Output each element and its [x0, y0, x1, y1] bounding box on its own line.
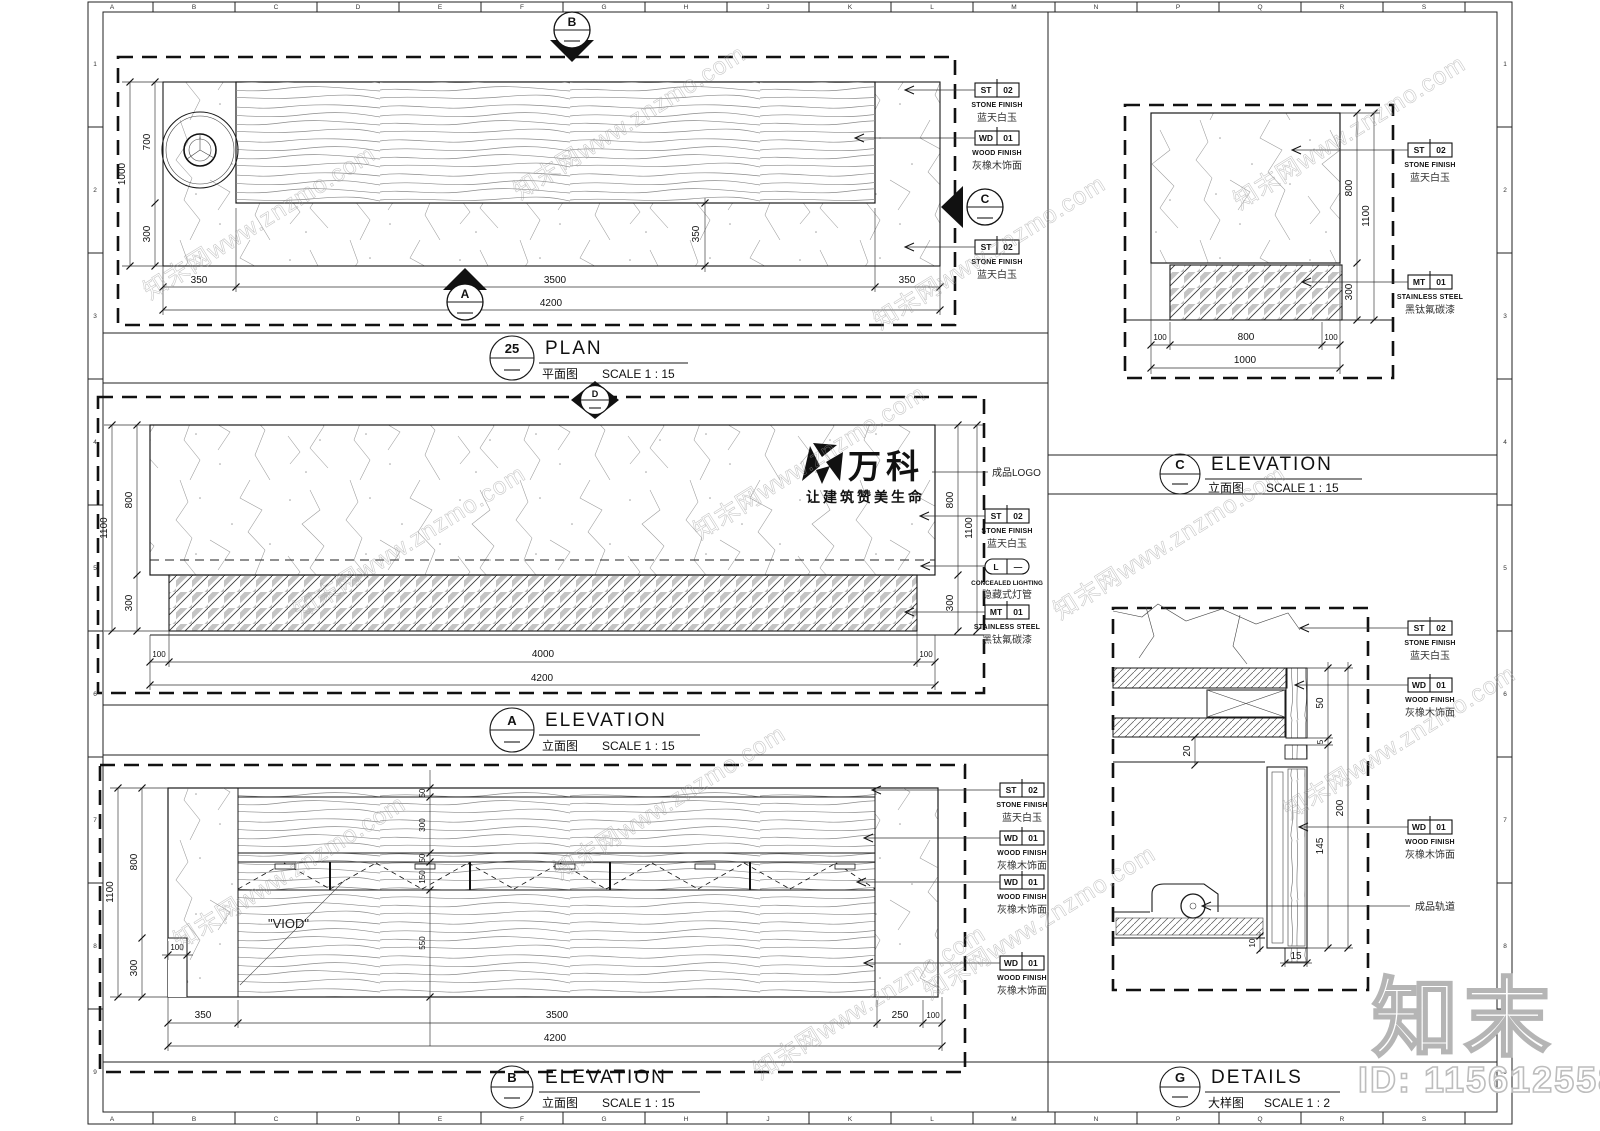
section-marker-c: C	[941, 186, 1003, 228]
callout-cn: 蓝天白玉	[977, 111, 1017, 124]
callout-num: 01	[1003, 133, 1013, 143]
title-scale: SCALE 1 : 2	[1264, 1096, 1330, 1110]
dim-label: 10	[1248, 938, 1257, 947]
grid-letter-top: Q	[1257, 4, 1262, 11]
callout-code: MT	[1413, 277, 1426, 287]
grid-number-left: 6	[93, 691, 97, 698]
callout-cn: 灰橡木饰面	[997, 984, 1047, 997]
dim-label: 3500	[546, 1010, 569, 1021]
dim-label: 100	[1153, 333, 1167, 342]
material-callout-light: L — CONCEALED LIGHTING 隐藏式灯管	[971, 559, 1043, 601]
grid-letter-bottom: H	[684, 1116, 689, 1123]
callout-code: WD	[1004, 833, 1018, 843]
detail-panel-cap-top	[1285, 745, 1307, 759]
callout-code: ST	[1006, 785, 1018, 795]
material-callout-stone: ST 02 STONE FINISH 蓝天白玉	[1404, 139, 1455, 184]
dim-label: 150	[418, 870, 427, 884]
dim-label: 100	[926, 1011, 940, 1020]
grid-letter-bottom: N	[1094, 1116, 1099, 1123]
dim-label: 15	[1290, 951, 1302, 962]
title-number: G	[1175, 1070, 1185, 1085]
grid-number-right: 2	[1503, 187, 1507, 194]
callout-en: STONE FINISH	[996, 802, 1047, 809]
callout-code: ST	[1414, 145, 1426, 155]
callout-en: WOOD FINISH	[997, 975, 1047, 982]
dim-label: 800	[129, 853, 140, 870]
dim-label: 100	[152, 650, 166, 659]
material-callout-stone: ST 02 STONE FINISH 蓝天白玉	[981, 505, 1032, 550]
dim-label: 3500	[544, 275, 567, 286]
dim-label: 300	[124, 594, 135, 611]
callout-num: 01	[1028, 833, 1038, 843]
marker-letter: A	[461, 287, 470, 301]
callout-cn: 蓝天白玉	[1002, 811, 1042, 824]
dim-label: 50	[418, 788, 427, 797]
grid-number-right: 8	[1503, 943, 1507, 950]
callout-cn: 灰橡木饰面	[1405, 848, 1455, 861]
elev-b-wood-panel	[238, 788, 875, 997]
dim-label: 1000	[117, 162, 128, 185]
callout-cn: 灰橡木饰面	[972, 159, 1022, 172]
material-callout-stone: ST 02 STONE FINISH 蓝天白玉	[1404, 617, 1455, 662]
dim-label: 1100	[1361, 205, 1372, 227]
grid-letter-bottom: E	[438, 1116, 443, 1123]
callout-num: 02	[1028, 785, 1038, 795]
title-number: B	[507, 1070, 516, 1085]
grid-letter-top: N	[1094, 4, 1099, 11]
grid-letter-top: P	[1176, 4, 1180, 11]
callout-num: 02	[1003, 85, 1013, 95]
title-cn: 立面图	[542, 1095, 578, 1110]
callout-num: —	[1014, 562, 1023, 572]
grid-letter-bottom: K	[848, 1116, 853, 1123]
elev-a-title: A ELEVATION 立面图 SCALE 1 : 15	[490, 708, 700, 753]
callout-num: 02	[1436, 623, 1446, 633]
void-label: "VIOD"	[268, 916, 309, 931]
grid-letter-bottom: S	[1422, 1116, 1427, 1123]
grid-letter-top: K	[848, 4, 853, 11]
dim-label: 300	[129, 959, 140, 976]
section-marker-b: B	[550, 12, 594, 62]
grid-letter-top: J	[766, 4, 769, 11]
callout-en: STAINLESS STEEL	[974, 624, 1041, 631]
callout-num: 01	[1028, 877, 1038, 887]
track-note: 成品轨道	[1415, 900, 1455, 913]
callout-code: WD	[1004, 877, 1018, 887]
plan-title: 25 PLAN 平面图 SCALE 1 : 15	[490, 336, 688, 381]
section-marker-a: A	[443, 268, 487, 320]
detail-floor-hatch	[1116, 918, 1263, 935]
dim-label: 200	[1335, 799, 1346, 816]
callout-num: 01	[1028, 958, 1038, 968]
callout-en: WOOD FINISH	[972, 150, 1022, 157]
callout-en: WOOD FINISH	[997, 850, 1047, 857]
grid-letter-bottom: C	[274, 1116, 279, 1123]
callout-en: STONE FINISH	[1404, 640, 1455, 647]
grid-number-right: 5	[1503, 565, 1507, 572]
grid-letter-bottom: B	[192, 1116, 196, 1123]
dim-label: 50	[1315, 697, 1326, 709]
grille-tab	[695, 864, 715, 869]
callout-en: STONE FINISH	[971, 102, 1022, 109]
callout-en: STONE FINISH	[981, 528, 1032, 535]
callout-cn: 黑钛氟碳漆	[982, 633, 1032, 646]
grid-number-left: 2	[93, 187, 97, 194]
callout-code: MT	[990, 607, 1003, 617]
elevation-b-view: "VIOD" 1100 800 300 100 50 300 50 150 55…	[100, 765, 1048, 1110]
title-scale: SCALE 1 : 15	[602, 739, 675, 753]
dim-label: 700	[142, 133, 153, 150]
callout-code: ST	[981, 85, 993, 95]
grid-letter-top: F	[520, 4, 524, 11]
callout-num: 01	[1436, 822, 1446, 832]
title-text: PLAN	[545, 338, 603, 359]
logo-slogan: 让建筑赞美生命	[806, 489, 925, 505]
dim-label: 550	[418, 936, 427, 950]
grid-number-left: 9	[93, 1069, 97, 1076]
dim-label: 800	[1344, 179, 1355, 196]
title-number: C	[1175, 457, 1185, 472]
grid-number-left: 7	[93, 817, 97, 824]
cad-sheet: AABBCCDDEEFFGGHHJJKKLLMMNNPPQQRRSS112233…	[0, 0, 1600, 1131]
callout-cn: 黑钛氟碳漆	[1405, 303, 1455, 316]
elevation-a-view: 万科 让建筑赞美生命 D 1100 800 300 800 300 1100 1…	[98, 381, 1043, 753]
grid-number-left: 5	[93, 565, 97, 572]
logo-note: 成品LOGO	[992, 467, 1041, 479]
grid-letter-top: B	[192, 4, 196, 11]
callout-en: WOOD FINISH	[997, 894, 1047, 901]
grid-number-left: 3	[93, 313, 97, 320]
grid-letter-top: M	[1011, 4, 1016, 11]
grid-letter-top: D	[356, 4, 361, 11]
grid-number-right: 4	[1503, 439, 1507, 446]
grid-number-right: 7	[1503, 817, 1507, 824]
callout-code: WD	[1412, 680, 1426, 690]
elev-a-steel-base	[169, 575, 917, 631]
material-callout-wood-1: WD 01 WOOD FINISH 灰橡木饰面	[997, 827, 1047, 872]
callout-num: 01	[1013, 607, 1023, 617]
callout-en: STONE FINISH	[1404, 162, 1455, 169]
callout-en: CONCEALED LIGHTING	[971, 580, 1043, 587]
material-callout-wood: WD 01 WOOD FINISH 灰橡木饰面	[972, 127, 1022, 172]
dim-label: 50	[418, 853, 427, 862]
watermark-tile: 知末网www.znzmo.com	[1049, 460, 1291, 625]
callout-code: WD	[1412, 822, 1426, 832]
grid-letter-bottom: Q	[1257, 1116, 1262, 1123]
material-callout-stone-top: ST 02 STONE FINISH 蓝天白玉	[971, 79, 1022, 124]
dim-label: 300	[945, 594, 956, 611]
callout-cn: 蓝天白玉	[987, 537, 1027, 550]
material-callout-steel: MT 01 STAINLESS STEEL 黑钛氟碳漆	[974, 601, 1041, 646]
callout-num: 02	[1013, 511, 1023, 521]
drawing-canvas: AABBCCDDEEFFGGHHJJKKLLMMNNPPQQRRSS112233…	[0, 0, 1600, 1131]
grid-letter-top: E	[438, 4, 443, 11]
grid-letter-top: C	[274, 4, 279, 11]
title-text: ELEVATION	[545, 1067, 667, 1088]
grid-number-left: 8	[93, 943, 97, 950]
grid-letter-bottom: R	[1340, 1116, 1345, 1123]
grid-letter-bottom: A	[110, 1116, 115, 1123]
detail-g-title: G DETAILS 大样图 SCALE 1 : 2	[1160, 1067, 1340, 1110]
callout-cn: 灰橡木饰面	[997, 859, 1047, 872]
title-number: A	[507, 713, 517, 728]
material-callout-steel: MT 01 STAINLESS STEEL 黑钛氟碳漆	[1397, 271, 1464, 316]
dim-label: 300	[142, 225, 153, 242]
dim-label: 1100	[964, 517, 975, 539]
callout-cn: 蓝天白玉	[1410, 649, 1450, 662]
callout-en: WOOD FINISH	[1405, 839, 1455, 846]
grid-number-right: 3	[1503, 313, 1507, 320]
dim-label: 4000	[532, 649, 555, 660]
elev-c-steel-base	[1170, 265, 1342, 320]
callout-cn: 隐藏式灯管	[982, 588, 1032, 601]
dim-label: 4200	[544, 1033, 567, 1044]
grid-letter-top: S	[1422, 4, 1427, 11]
grid-letter-bottom: F	[520, 1116, 524, 1123]
title-cn: 立面图	[542, 738, 578, 753]
title-number: 25	[505, 341, 519, 356]
callout-code: L	[993, 562, 998, 572]
title-cn: 大样图	[1208, 1095, 1244, 1110]
dim-label: 1100	[99, 517, 110, 539]
title-scale: SCALE 1 : 15	[602, 1096, 675, 1110]
dim-label: 800	[124, 491, 135, 508]
dim-label: 1100	[105, 881, 116, 903]
grille-tab	[835, 864, 855, 869]
grid-letter-top: L	[930, 4, 934, 11]
title-cn: 平面图	[542, 367, 578, 381]
dim-label: 100	[919, 650, 933, 659]
detail-top-strip-2	[1113, 718, 1285, 737]
grid-number-left: 1	[93, 61, 97, 68]
marker-letter: B	[568, 15, 577, 29]
callout-en: STAINLESS STEEL	[1397, 294, 1464, 301]
dim-label: 4200	[531, 673, 554, 684]
dim-label: 100	[1324, 333, 1338, 342]
dim-label: 300	[1344, 283, 1355, 300]
callout-num: 01	[1436, 680, 1446, 690]
grid-letter-bottom: P	[1176, 1116, 1180, 1123]
grid-letter-top: R	[1340, 4, 1345, 11]
material-callout-wood-2: WD 01 WOOD FINISH 灰橡木饰面	[1405, 816, 1455, 861]
title-text: ELEVATION	[545, 710, 667, 731]
dim-label: 800	[945, 491, 956, 508]
dim-label: 20	[1182, 745, 1193, 757]
watermark-big-text: 知末	[1372, 971, 1556, 1067]
grid-letter-top: H	[684, 4, 689, 11]
site-watermark: 知末 ID: 1156125582	[1358, 971, 1600, 1100]
grid-letter-top: A	[110, 4, 115, 11]
dim-label: 300	[418, 818, 427, 832]
grid-number-left: 4	[93, 439, 97, 446]
grid-letter-bottom: G	[601, 1116, 606, 1123]
marker-letter: C	[981, 192, 990, 206]
grid-letter-bottom: M	[1011, 1116, 1016, 1123]
callout-code: WD	[979, 133, 993, 143]
grille-tab	[415, 864, 435, 869]
callout-num: 02	[1436, 145, 1446, 155]
grid-letter-bottom: J	[766, 1116, 769, 1123]
callout-code: ST	[991, 511, 1003, 521]
marker-letter: D	[592, 389, 599, 399]
grid-letter-bottom: L	[930, 1116, 934, 1123]
title-text: DETAILS	[1211, 1067, 1303, 1088]
grid-number-right: 1	[1503, 61, 1507, 68]
detail-wood-edge	[1286, 668, 1307, 738]
dim-label: 5	[1316, 739, 1325, 744]
callout-cn: 蓝天白玉	[1410, 171, 1450, 184]
title-scale: SCALE 1 : 15	[602, 367, 675, 381]
section-marker-d: D	[571, 381, 619, 419]
logo-name: 万科	[848, 448, 924, 485]
dim-label: 350	[691, 225, 702, 242]
dim-label: 1000	[1234, 355, 1257, 366]
grid-letter-top: G	[601, 4, 606, 11]
callout-num: 01	[1436, 277, 1446, 287]
material-callout-stone: ST 02 STONE FINISH 蓝天白玉	[996, 779, 1047, 824]
grid-letter-bottom: D	[356, 1116, 361, 1123]
dim-label: 4200	[540, 298, 563, 309]
callout-code: ST	[1414, 623, 1426, 633]
detail-top-strip-1	[1113, 668, 1287, 688]
detail-stone-cracks	[1113, 604, 1300, 664]
dim-label: 145	[1315, 837, 1326, 854]
watermark-id-text: ID: 1156125582	[1358, 1059, 1600, 1100]
dim-label: 350	[195, 1010, 212, 1021]
dim-label: 250	[892, 1010, 909, 1021]
dim-label: 800	[1238, 332, 1255, 343]
